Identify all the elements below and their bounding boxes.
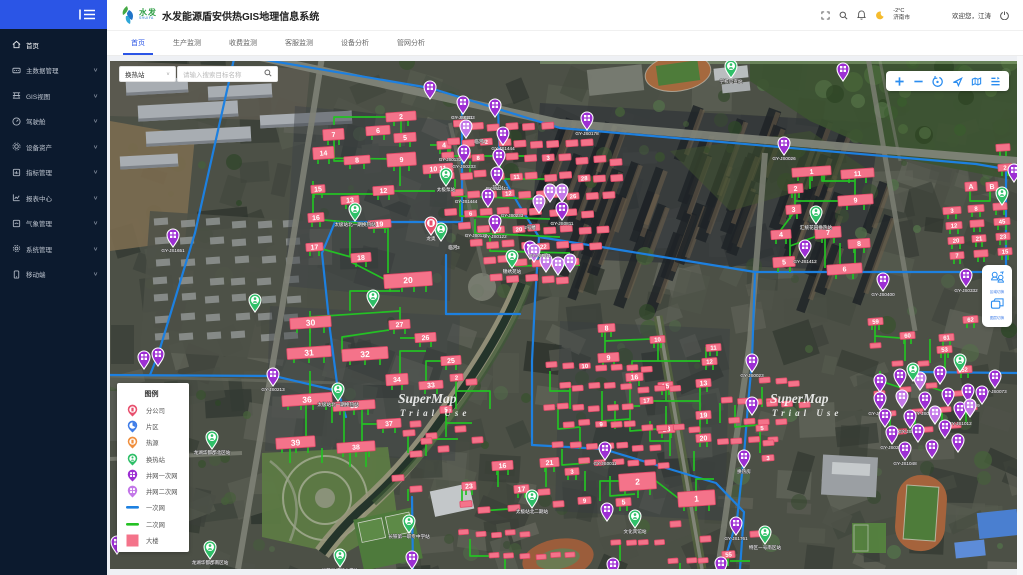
svg-text:33: 33 (427, 382, 435, 390)
svg-text:文化宾馆站: 文化宾馆站 (624, 528, 647, 535)
svg-text:10: 10 (654, 337, 662, 343)
svg-text:A: A (968, 184, 974, 191)
svg-text:20: 20 (516, 227, 524, 233)
svg-text:2: 2 (793, 186, 797, 193)
svg-text:GY-JS0811: GY-JS0811 (551, 221, 574, 226)
svg-text:9: 9 (853, 197, 857, 204)
svg-text:11: 11 (854, 171, 862, 179)
svg-text:Trial Use: Trial Use (400, 408, 470, 418)
svg-text:16: 16 (498, 463, 506, 471)
svg-text:14: 14 (319, 150, 327, 158)
svg-text:锦绣苑站: 锦绣苑站 (503, 268, 522, 275)
svg-text:20: 20 (953, 238, 961, 244)
svg-text:9: 9 (399, 157, 403, 164)
svg-text:2: 2 (399, 114, 403, 121)
svg-text:GY-JS0213: GY-JS0213 (261, 387, 285, 392)
svg-text:5: 5 (403, 135, 407, 142)
svg-text:21: 21 (976, 236, 984, 242)
svg-text:2号楼: 2号楼 (524, 224, 536, 231)
svg-text:2: 2 (635, 476, 641, 486)
svg-text:临河3: 临河3 (448, 244, 460, 251)
svg-text:3: 3 (791, 207, 795, 214)
svg-text:7: 7 (331, 132, 335, 139)
svg-text:17: 17 (310, 244, 318, 252)
svg-text:20: 20 (699, 435, 707, 443)
svg-text:GY-JS0233: GY-JS0233 (501, 213, 524, 218)
svg-text:6: 6 (376, 128, 380, 135)
svg-text:61: 61 (943, 335, 951, 341)
svg-text:15: 15 (1002, 249, 1010, 255)
svg-text:55: 55 (725, 552, 733, 558)
svg-text:12: 12 (379, 188, 387, 196)
svg-text:GY-JS0011: GY-JS0011 (594, 461, 617, 466)
svg-text:GY-JS0178: GY-JS0178 (575, 131, 599, 136)
svg-text:SuperMap: SuperMap (770, 391, 829, 406)
svg-text:GY-JS0023: GY-JS0023 (740, 373, 764, 378)
svg-text:临河2: 临河2 (474, 138, 486, 145)
svg-text:GY-JS0122: GY-JS0122 (465, 233, 488, 238)
svg-text:22: 22 (540, 244, 548, 250)
svg-text:17: 17 (643, 398, 651, 404)
svg-text:龙湖华都郡南区站: 龙湖华都郡南区站 (192, 559, 229, 566)
svg-text:45: 45 (999, 219, 1007, 225)
svg-text:12: 12 (951, 223, 959, 229)
svg-text:60: 60 (904, 333, 912, 339)
svg-text:9: 9 (606, 355, 610, 362)
svg-text:37: 37 (385, 421, 393, 429)
svg-text:5: 5 (621, 499, 625, 506)
svg-text:太极泵站: 太极泵站 (437, 186, 456, 193)
svg-text:28: 28 (581, 176, 589, 182)
svg-text:39: 39 (290, 437, 300, 448)
svg-text:GY-JS0332: GY-JS0332 (954, 288, 978, 293)
svg-text:13: 13 (699, 380, 707, 388)
svg-text:4: 4 (442, 142, 446, 149)
svg-text:学校官宣站: 学校官宣站 (720, 78, 743, 85)
svg-text:7: 7 (826, 230, 830, 237)
svg-text:GY-JS0026: GY-JS0026 (772, 156, 796, 161)
svg-text:龙湖华都郡北区站: 龙湖华都郡北区站 (194, 449, 231, 456)
svg-text:1: 1 (809, 169, 813, 176)
svg-text:GY-JS1048: GY-JS1048 (893, 461, 917, 466)
svg-text:19: 19 (375, 221, 383, 229)
svg-text:25: 25 (447, 358, 455, 366)
svg-text:6: 6 (842, 266, 846, 273)
svg-text:长铁县城贸小学站: 长铁县城贸小学站 (322, 567, 359, 569)
svg-text:38: 38 (352, 444, 360, 452)
svg-text:长铁第一职专中学站: 长铁第一职专中学站 (388, 533, 430, 540)
svg-text:30: 30 (305, 317, 315, 328)
svg-text:8: 8 (604, 325, 608, 332)
svg-text:GY-JS0811: GY-JS0811 (529, 253, 552, 258)
svg-text:26: 26 (421, 335, 429, 343)
svg-text:5: 5 (782, 259, 786, 266)
svg-text:32: 32 (360, 349, 370, 360)
svg-text:27: 27 (395, 322, 403, 330)
svg-text:59: 59 (872, 319, 880, 325)
svg-text:前卫4: 前卫4 (492, 184, 504, 191)
svg-text:太极站北一期换热站: 太极站北一期换热站 (317, 401, 359, 408)
svg-text:汇统花园换热站: 汇统花园换热站 (800, 224, 833, 231)
svg-text:Trial Use: Trial Use (772, 408, 842, 418)
svg-text:21: 21 (545, 460, 553, 468)
svg-text:特区一号南区站: 特区一号南区站 (749, 544, 782, 551)
svg-text:GY-JS0111: GY-JS0111 (451, 115, 473, 120)
svg-text:15: 15 (314, 186, 322, 194)
svg-text:53: 53 (941, 347, 949, 353)
svg-text:26: 26 (570, 194, 578, 200)
svg-text:62: 62 (967, 317, 975, 323)
svg-text:GY-JS1012: GY-JS1012 (948, 421, 972, 426)
svg-text:34: 34 (393, 377, 401, 385)
svg-text:GY-JS1761: GY-JS1761 (724, 536, 748, 541)
svg-text:11: 11 (513, 175, 520, 181)
svg-text:36: 36 (302, 394, 312, 405)
svg-text:12: 12 (505, 191, 513, 197)
svg-text:太极站北二期站: 太极站北二期站 (516, 508, 549, 515)
svg-text:10: 10 (581, 364, 589, 370)
svg-text:太极站北一期换热站: 太极站北一期换热站 (334, 221, 376, 228)
svg-text:18: 18 (357, 255, 365, 263)
svg-text:19: 19 (699, 412, 707, 420)
svg-text:GY-JS0400: GY-JS0400 (871, 292, 895, 297)
svg-text:换热房: 换热房 (737, 468, 751, 475)
svg-text:8: 8 (857, 241, 861, 248)
svg-text:GY-JS0133: GY-JS0133 (439, 157, 462, 162)
svg-text:23: 23 (1000, 234, 1008, 240)
svg-text:GY-JS1444: GY-JS1444 (455, 199, 478, 204)
svg-text:31: 31 (304, 347, 314, 358)
svg-text:4: 4 (779, 232, 783, 239)
svg-text:12: 12 (706, 359, 714, 365)
svg-text:16: 16 (312, 215, 320, 223)
svg-text:GY-JS1651: GY-JS1651 (161, 248, 185, 253)
svg-text:GY-JS0233: GY-JS0233 (452, 164, 476, 169)
svg-text:SuperMap: SuperMap (398, 391, 457, 406)
svg-text:20: 20 (403, 275, 413, 286)
svg-text:23: 23 (465, 483, 473, 491)
svg-text:B: B (989, 184, 995, 191)
svg-text:8: 8 (355, 157, 359, 164)
svg-text:龙奥: 龙奥 (426, 235, 436, 242)
svg-text:1: 1 (694, 493, 700, 503)
svg-text:11: 11 (710, 345, 717, 351)
svg-text:16: 16 (630, 374, 638, 382)
svg-text:GY-JS1412: GY-JS1412 (793, 259, 817, 264)
svg-text:17: 17 (517, 486, 525, 494)
